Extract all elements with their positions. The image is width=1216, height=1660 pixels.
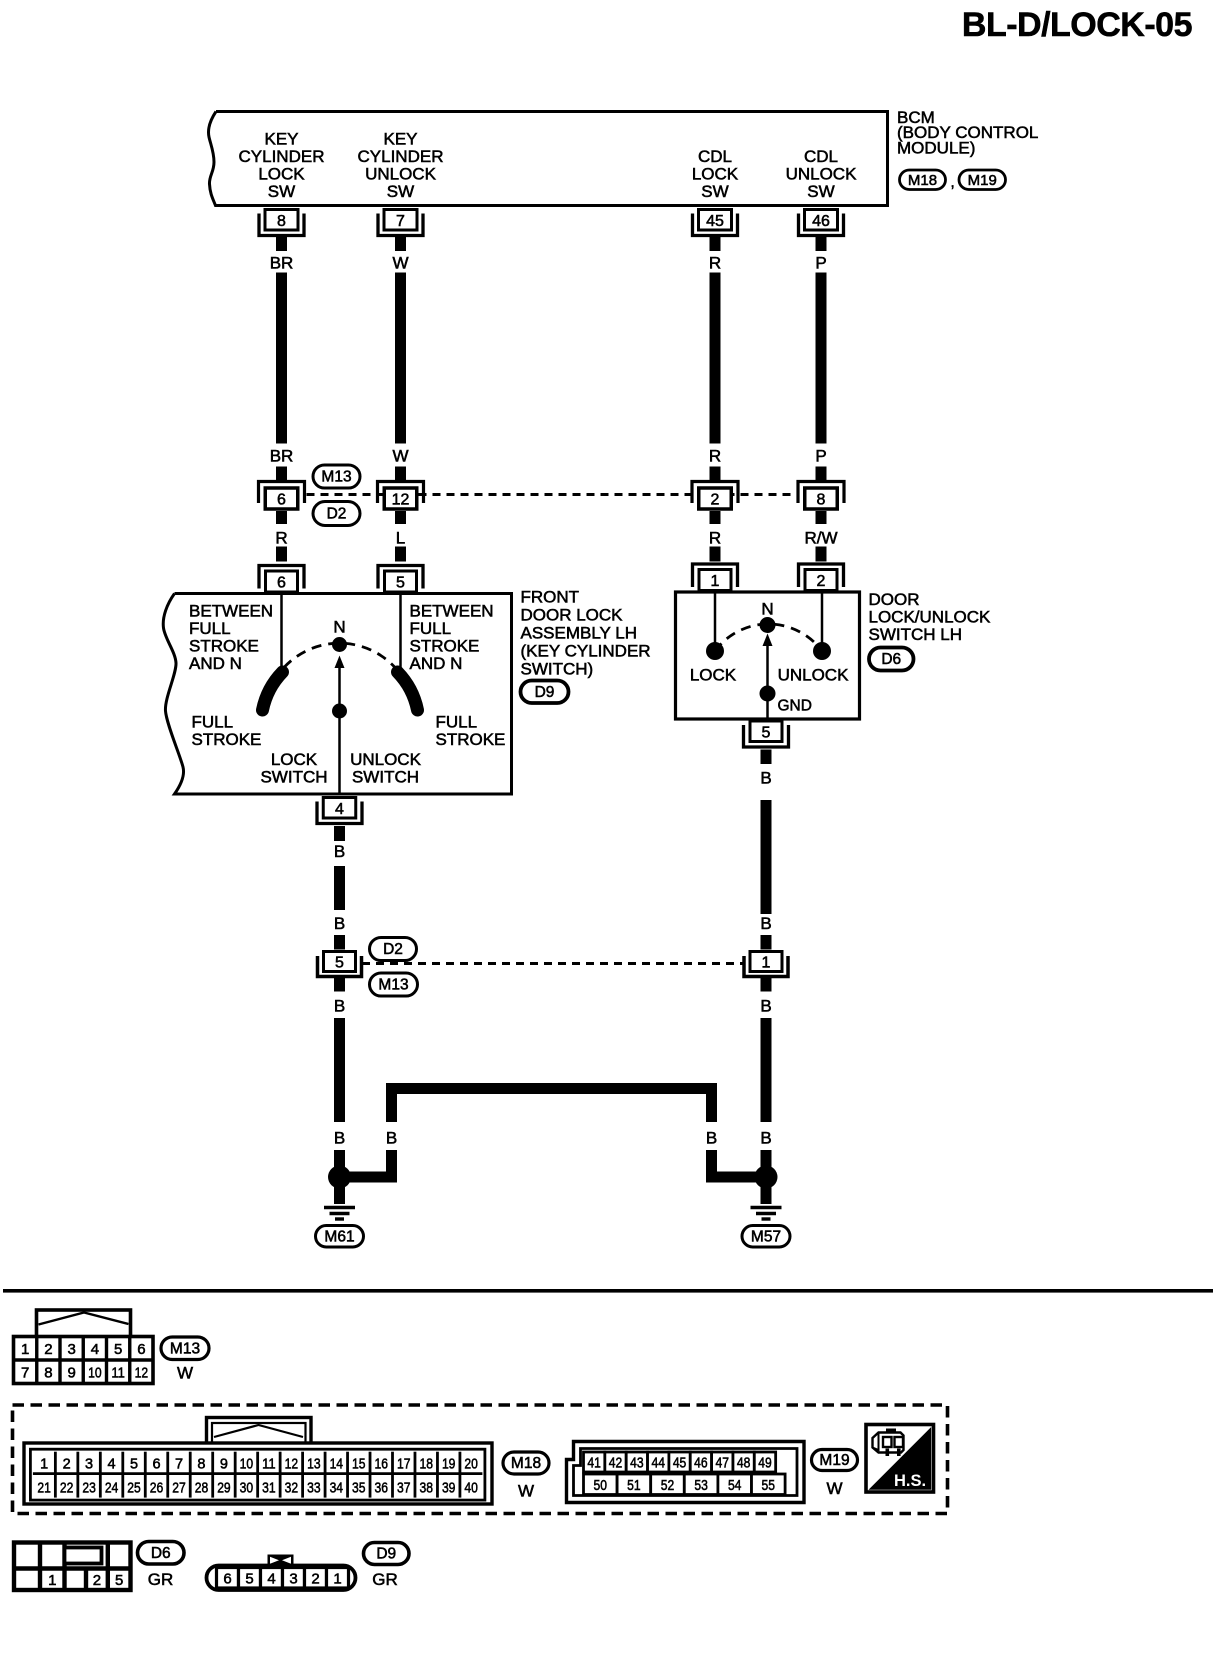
svg-text:7: 7	[21, 1365, 29, 1382]
svg-text:3: 3	[67, 1341, 75, 1358]
svg-text:44: 44	[651, 1456, 665, 1472]
svg-text:M13: M13	[321, 469, 351, 486]
svg-text:,: ,	[951, 174, 955, 191]
svg-text:35: 35	[352, 1481, 366, 1497]
svg-text:B: B	[706, 1129, 717, 1148]
svg-text:9: 9	[67, 1365, 75, 1382]
svg-text:1: 1	[711, 573, 720, 590]
svg-text:B: B	[334, 997, 345, 1016]
svg-text:MODULE): MODULE)	[897, 138, 975, 157]
svg-text:W: W	[518, 1482, 534, 1501]
svg-text:SW: SW	[268, 182, 295, 201]
svg-text:20: 20	[464, 1457, 478, 1473]
svg-text:45: 45	[673, 1456, 687, 1472]
svg-text:25: 25	[127, 1481, 141, 1497]
svg-text:5: 5	[335, 955, 344, 972]
svg-text:33: 33	[307, 1481, 321, 1497]
svg-text:7: 7	[175, 1457, 183, 1473]
svg-text:DOOR LOCK: DOOR LOCK	[521, 606, 624, 625]
svg-text:17: 17	[397, 1457, 411, 1473]
svg-text:6: 6	[277, 575, 286, 592]
svg-text:M13: M13	[170, 1340, 200, 1357]
svg-text:R: R	[709, 529, 721, 548]
svg-text:H.S.: H.S.	[894, 1472, 926, 1490]
svg-text:30: 30	[240, 1481, 254, 1497]
svg-text:GR: GR	[148, 1570, 174, 1589]
svg-text:2: 2	[63, 1457, 71, 1473]
svg-text:SWITCH LH: SWITCH LH	[869, 625, 963, 644]
svg-text:14: 14	[330, 1457, 344, 1473]
svg-text:FULL: FULL	[410, 619, 452, 638]
svg-text:4: 4	[91, 1341, 99, 1358]
svg-text:6: 6	[223, 1571, 231, 1588]
svg-text:B: B	[386, 1129, 397, 1148]
svg-text:1: 1	[40, 1457, 48, 1473]
svg-text:N: N	[333, 618, 345, 637]
svg-text:9: 9	[220, 1457, 228, 1473]
svg-text:D6: D6	[881, 651, 901, 668]
svg-text:27: 27	[172, 1481, 186, 1497]
svg-text:LOCK: LOCK	[271, 750, 318, 769]
svg-text:B: B	[760, 1129, 771, 1148]
svg-text:STROKE: STROKE	[189, 637, 259, 656]
svg-text:L: L	[396, 529, 405, 548]
svg-text:P: P	[815, 254, 826, 273]
svg-text:D6: D6	[151, 1545, 171, 1562]
svg-text:CDL: CDL	[698, 147, 732, 166]
svg-text:37: 37	[397, 1481, 411, 1497]
svg-text:M13: M13	[378, 977, 408, 994]
svg-text:43: 43	[630, 1456, 644, 1472]
svg-text:40: 40	[464, 1481, 478, 1497]
svg-text:BR: BR	[270, 254, 294, 273]
svg-text:26: 26	[150, 1481, 164, 1497]
svg-text:UNLOCK: UNLOCK	[778, 666, 850, 685]
svg-text:42: 42	[609, 1456, 623, 1472]
svg-text:8: 8	[197, 1457, 205, 1473]
svg-text:GND: GND	[778, 698, 812, 715]
svg-text:4: 4	[267, 1571, 275, 1588]
svg-text:UNLOCK: UNLOCK	[365, 165, 437, 184]
svg-text:FULL: FULL	[436, 713, 478, 732]
svg-text:AND N: AND N	[410, 654, 463, 673]
svg-text:21: 21	[37, 1481, 51, 1497]
svg-text:R: R	[709, 254, 721, 273]
svg-text:AND N: AND N	[189, 654, 242, 673]
svg-text:5: 5	[130, 1457, 138, 1473]
svg-text:D9: D9	[535, 684, 555, 701]
svg-text:2: 2	[93, 1572, 101, 1589]
svg-text:BR: BR	[270, 447, 294, 466]
svg-text:11: 11	[111, 1365, 125, 1382]
svg-text:24: 24	[105, 1481, 119, 1497]
svg-text:47: 47	[716, 1456, 730, 1472]
svg-text:2: 2	[711, 492, 720, 509]
svg-text:4: 4	[335, 801, 344, 818]
svg-text:10: 10	[88, 1365, 102, 1382]
svg-text:LOCK: LOCK	[690, 666, 737, 685]
svg-text:ASSEMBLY LH: ASSEMBLY LH	[521, 624, 638, 643]
svg-text:8: 8	[277, 213, 286, 230]
svg-text:4: 4	[108, 1457, 116, 1473]
svg-text:W: W	[826, 1479, 842, 1498]
svg-text:STROKE: STROKE	[192, 730, 262, 749]
svg-text:1: 1	[333, 1571, 341, 1588]
svg-text:5: 5	[114, 1341, 122, 1358]
svg-text:UNLOCK: UNLOCK	[786, 165, 858, 184]
svg-text:M19: M19	[819, 1452, 849, 1469]
svg-text:B: B	[760, 914, 771, 933]
svg-text:LOCK: LOCK	[258, 165, 305, 184]
svg-text:32: 32	[285, 1481, 299, 1497]
svg-text:16: 16	[375, 1457, 389, 1473]
svg-text:B: B	[334, 914, 345, 933]
svg-text:23: 23	[82, 1481, 96, 1497]
svg-text:36: 36	[375, 1481, 389, 1497]
svg-text:W: W	[177, 1364, 193, 1383]
svg-text:FULL: FULL	[189, 619, 231, 638]
svg-text:54: 54	[728, 1478, 742, 1494]
svg-text:6: 6	[152, 1457, 160, 1473]
svg-text:CYLINDER: CYLINDER	[239, 147, 325, 166]
svg-text:53: 53	[694, 1478, 708, 1494]
svg-text:B: B	[760, 997, 771, 1016]
svg-text:D2: D2	[327, 506, 347, 523]
svg-text:49: 49	[758, 1456, 772, 1472]
svg-text:W: W	[392, 447, 408, 466]
svg-text:22: 22	[60, 1481, 74, 1497]
svg-text:7: 7	[396, 213, 405, 230]
svg-text:R/W: R/W	[804, 529, 837, 548]
svg-text:R: R	[275, 529, 287, 548]
svg-text:10: 10	[240, 1457, 254, 1473]
svg-text:STROKE: STROKE	[436, 730, 506, 749]
svg-text:13: 13	[307, 1457, 321, 1473]
svg-text:B: B	[334, 1129, 345, 1148]
svg-text:CDL: CDL	[804, 147, 838, 166]
svg-text:41: 41	[587, 1456, 601, 1472]
svg-text:1: 1	[21, 1341, 29, 1358]
svg-text:M61: M61	[324, 1228, 354, 1245]
svg-text:M18: M18	[511, 1455, 541, 1472]
svg-text:46: 46	[694, 1456, 708, 1472]
svg-text:28: 28	[195, 1481, 209, 1497]
svg-text:BETWEEN: BETWEEN	[189, 602, 273, 621]
svg-text:UNLOCK: UNLOCK	[350, 750, 422, 769]
svg-text:R: R	[709, 447, 721, 466]
svg-text:M19: M19	[968, 172, 997, 189]
svg-text:48: 48	[737, 1456, 751, 1472]
svg-text:12: 12	[285, 1457, 299, 1473]
svg-text:34: 34	[330, 1481, 344, 1497]
svg-text:18: 18	[419, 1457, 433, 1473]
svg-text:3: 3	[85, 1457, 93, 1473]
svg-text:29: 29	[217, 1481, 231, 1497]
svg-text:CYLINDER: CYLINDER	[358, 147, 444, 166]
svg-text:2: 2	[44, 1341, 52, 1358]
svg-text:19: 19	[442, 1457, 456, 1473]
svg-text:5: 5	[396, 575, 405, 592]
svg-text:6: 6	[137, 1341, 145, 1358]
svg-text:1: 1	[48, 1572, 56, 1589]
svg-text:6: 6	[277, 492, 286, 509]
svg-text:KEY: KEY	[383, 130, 417, 149]
svg-text:N: N	[761, 600, 773, 619]
svg-text:55: 55	[762, 1478, 776, 1494]
svg-text:P: P	[815, 447, 826, 466]
svg-text:12: 12	[135, 1365, 149, 1382]
svg-text:D2: D2	[383, 941, 403, 958]
svg-text:46: 46	[812, 213, 830, 230]
svg-text:5: 5	[762, 725, 771, 742]
svg-text:BL-D/LOCK-05: BL-D/LOCK-05	[962, 6, 1192, 44]
svg-text:M57: M57	[751, 1228, 781, 1245]
svg-text:45: 45	[706, 213, 724, 230]
svg-text:2: 2	[817, 573, 826, 590]
svg-text:50: 50	[594, 1478, 608, 1494]
svg-text:LOCK/UNLOCK: LOCK/UNLOCK	[869, 608, 992, 627]
svg-text:(KEY CYLINDER: (KEY CYLINDER	[521, 642, 651, 661]
svg-text:5: 5	[115, 1572, 123, 1589]
svg-text:STROKE: STROKE	[410, 637, 480, 656]
svg-text:FRONT: FRONT	[521, 588, 580, 607]
svg-text:1: 1	[762, 955, 771, 972]
svg-text:15: 15	[352, 1457, 366, 1473]
svg-text:M18: M18	[908, 172, 937, 189]
svg-text:SWITCH): SWITCH)	[521, 660, 594, 679]
svg-text:KEY: KEY	[264, 130, 298, 149]
svg-text:BETWEEN: BETWEEN	[410, 602, 494, 621]
svg-text:DOOR: DOOR	[869, 590, 920, 609]
svg-text:B: B	[760, 769, 771, 788]
svg-text:38: 38	[419, 1481, 433, 1497]
svg-text:52: 52	[661, 1478, 675, 1494]
svg-text:W: W	[392, 254, 408, 273]
svg-text:SWITCH: SWITCH	[352, 768, 419, 787]
svg-text:11: 11	[262, 1457, 276, 1473]
svg-text:SW: SW	[807, 182, 834, 201]
svg-text:2: 2	[311, 1571, 319, 1588]
svg-text:39: 39	[442, 1481, 456, 1497]
svg-text:31: 31	[262, 1481, 276, 1497]
svg-text:5: 5	[245, 1571, 253, 1588]
svg-text:12: 12	[392, 492, 410, 509]
svg-text:8: 8	[817, 492, 826, 509]
svg-text:SW: SW	[701, 182, 728, 201]
svg-text:GR: GR	[372, 1570, 398, 1589]
svg-text:B: B	[334, 842, 345, 861]
svg-text:SWITCH: SWITCH	[260, 768, 327, 787]
svg-text:SW: SW	[387, 182, 414, 201]
svg-text:FULL: FULL	[192, 713, 234, 732]
svg-text:LOCK: LOCK	[692, 165, 739, 184]
svg-text:D9: D9	[376, 1546, 396, 1563]
svg-text:3: 3	[289, 1571, 297, 1588]
svg-text:8: 8	[44, 1365, 52, 1382]
svg-text:51: 51	[627, 1478, 641, 1494]
